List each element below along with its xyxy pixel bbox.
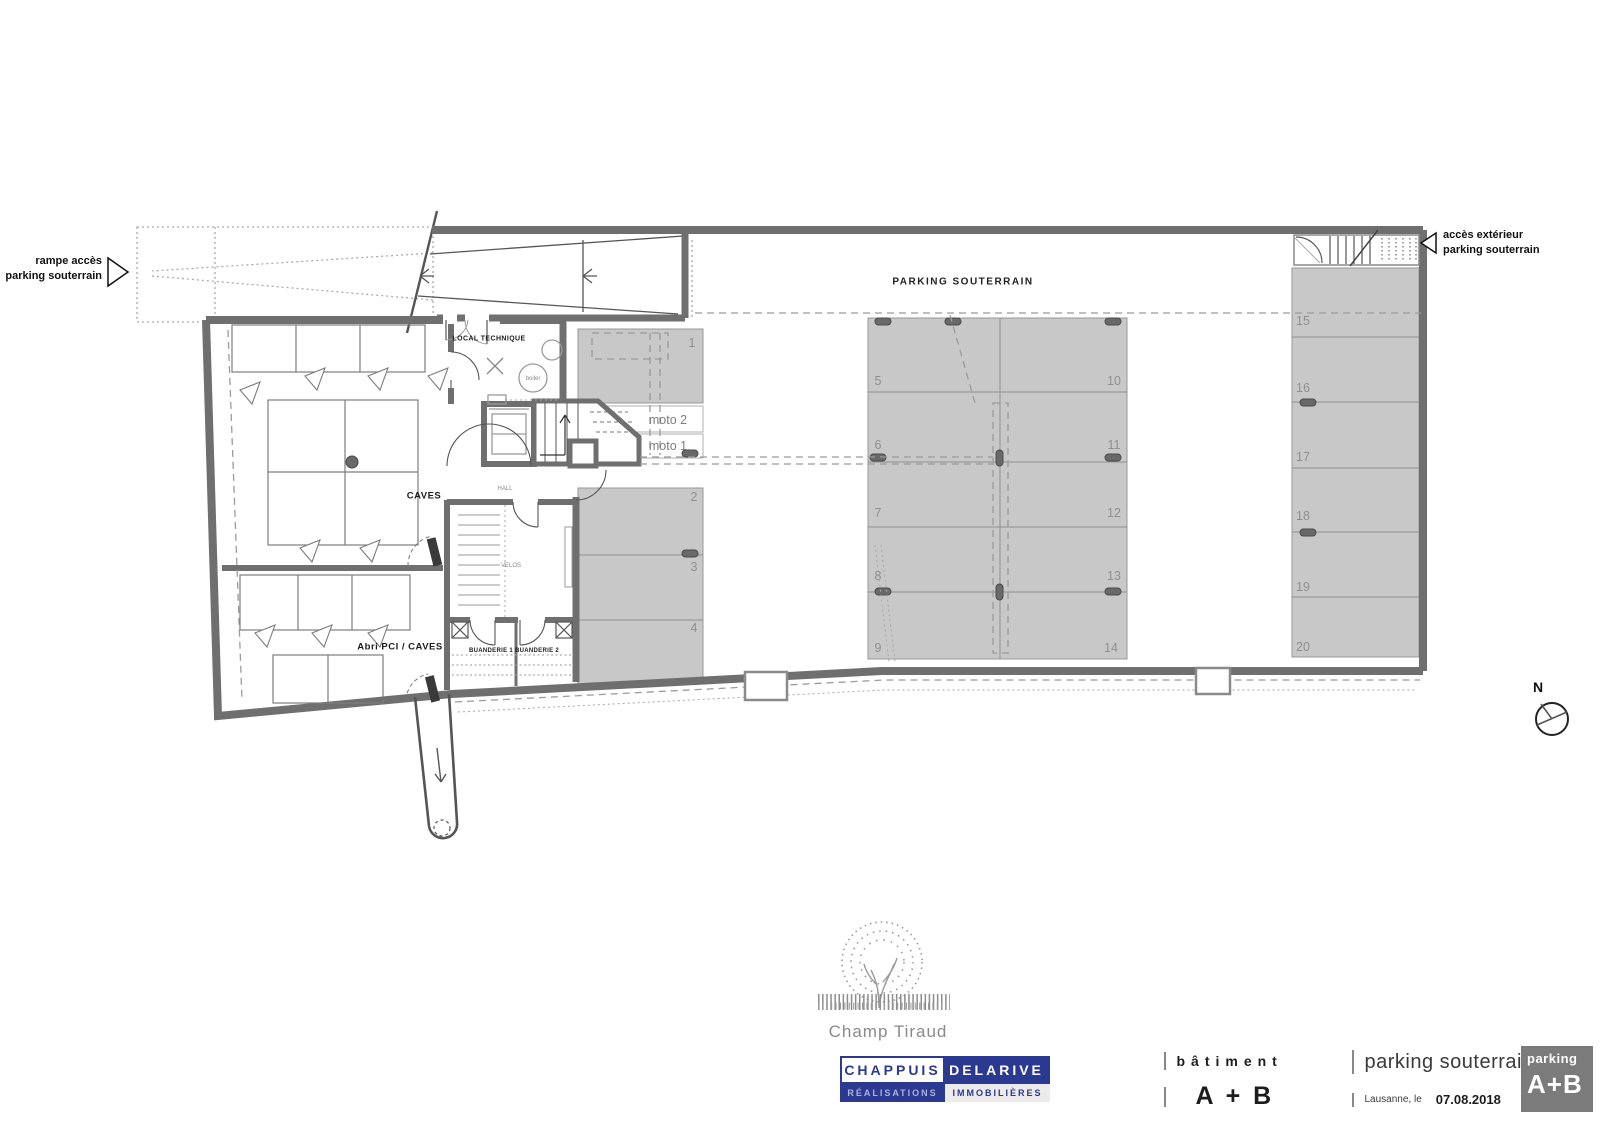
ramp-access-label: rampe accès parking souterrain [0,254,102,284]
building-value: A + B [1196,1082,1275,1111]
divider [1164,1087,1166,1107]
parking-spot-number: 13 [1107,569,1121,583]
moto-stall-label: moto 1 [649,439,687,453]
parking-spot-number: 3 [691,560,698,574]
floor-plan-drawing [0,0,1600,1132]
stamp-top: parking [1527,1051,1587,1066]
parking-spot-number: 10 [1107,374,1121,388]
parking-spot-number: 1 [689,336,696,350]
building-value-row: A + B [1164,1082,1274,1111]
moto-stall-label: moto 2 [649,413,687,427]
parking-spot-number: 18 [1296,509,1310,523]
tunnel [415,694,457,838]
date-value: 07.08.2018 [1436,1092,1501,1107]
drawing-title: parking souterrain [1365,1051,1534,1074]
room-label-velos: VELOS [501,563,521,569]
boiler-equipment [487,340,562,404]
parking-spot-number: 2 [691,490,698,504]
room-label-buanderie1: BUANDERIE 1 [469,648,513,654]
divider [1352,1050,1354,1074]
parking-stamp: parking A+B [1521,1046,1593,1112]
pci-doors [406,536,442,703]
company-tagline-realisations: RÉALISATIONS [840,1084,945,1102]
building-label: bâtiment [1177,1053,1283,1069]
ramp-direction-arrow-icon [108,258,128,286]
company-name-chappuis: CHAPPUIS [840,1056,945,1084]
parking-spot-number: 4 [691,621,698,635]
boiler-label: boiler [526,376,541,382]
divider [1352,1093,1354,1107]
tree-logo [818,922,950,1008]
elevator [484,404,534,464]
company-tagline-immobilieres: IMMOBILIÈRES [945,1084,1050,1102]
parking-spot-number: 5 [875,374,882,388]
parking-spot-number: 16 [1296,381,1310,395]
parking-spot-number: 7 [875,506,882,520]
interior-doors [447,352,545,645]
exterior-access-label: accès extérieur parking souterrain [1443,228,1540,258]
project-name: Champ Tiraud [818,1022,958,1042]
date-row: Lausanne, le 07.08.2018 [1352,1092,1501,1107]
room-label-hall: HALL [497,486,512,492]
company-logo: CHAPPUIS DELARIVE RÉALISATIONS IMMOBILIÈ… [840,1056,1050,1102]
building-label-row: bâtiment [1164,1052,1283,1070]
parking-spot-number: 20 [1296,640,1310,654]
room-label-caves: CAVES [407,491,442,502]
parking-spot-number: 14 [1104,641,1118,655]
company-name-delarive: DELARIVE [945,1056,1050,1084]
parking-spot-number: 9 [875,641,882,655]
parking-spot-number: 11 [1108,438,1121,452]
parking-spot-number: 15 [1296,314,1310,328]
parking-spot-number: 6 [875,438,882,452]
stamp-bottom: A+B [1527,1069,1587,1100]
parking-spot-number: 12 [1107,506,1121,520]
bike-racks [458,515,572,605]
exterior-stair [1294,230,1419,266]
area-title: PARKING SOUTERRAIN [892,277,1033,288]
parking-stalls [578,268,1419,687]
divider [1164,1052,1166,1070]
north-compass-icon [1536,703,1568,735]
north-label: N [1533,679,1543,695]
door-swing-marks [240,368,448,647]
room-label-local-technique: LOCAL TECHNIQUE [452,336,525,343]
buanderie-floor-dots [452,655,574,675]
room-label-buanderie2: BUANDERIE 2 [515,648,559,654]
parking-spot-number: 8 [875,569,882,583]
plan-title-row: parking souterrain [1352,1050,1534,1074]
room-label-abri-pci: Abri PCI / CAVES [357,642,442,653]
floor-plan-sheet: PARKING SOUTERRAIN rampe accès parking s… [0,0,1600,1132]
city-label: Lausanne, le [1365,1094,1422,1105]
parking-spot-number: 17 [1296,450,1310,464]
parking-spot-number: 19 [1296,580,1310,594]
